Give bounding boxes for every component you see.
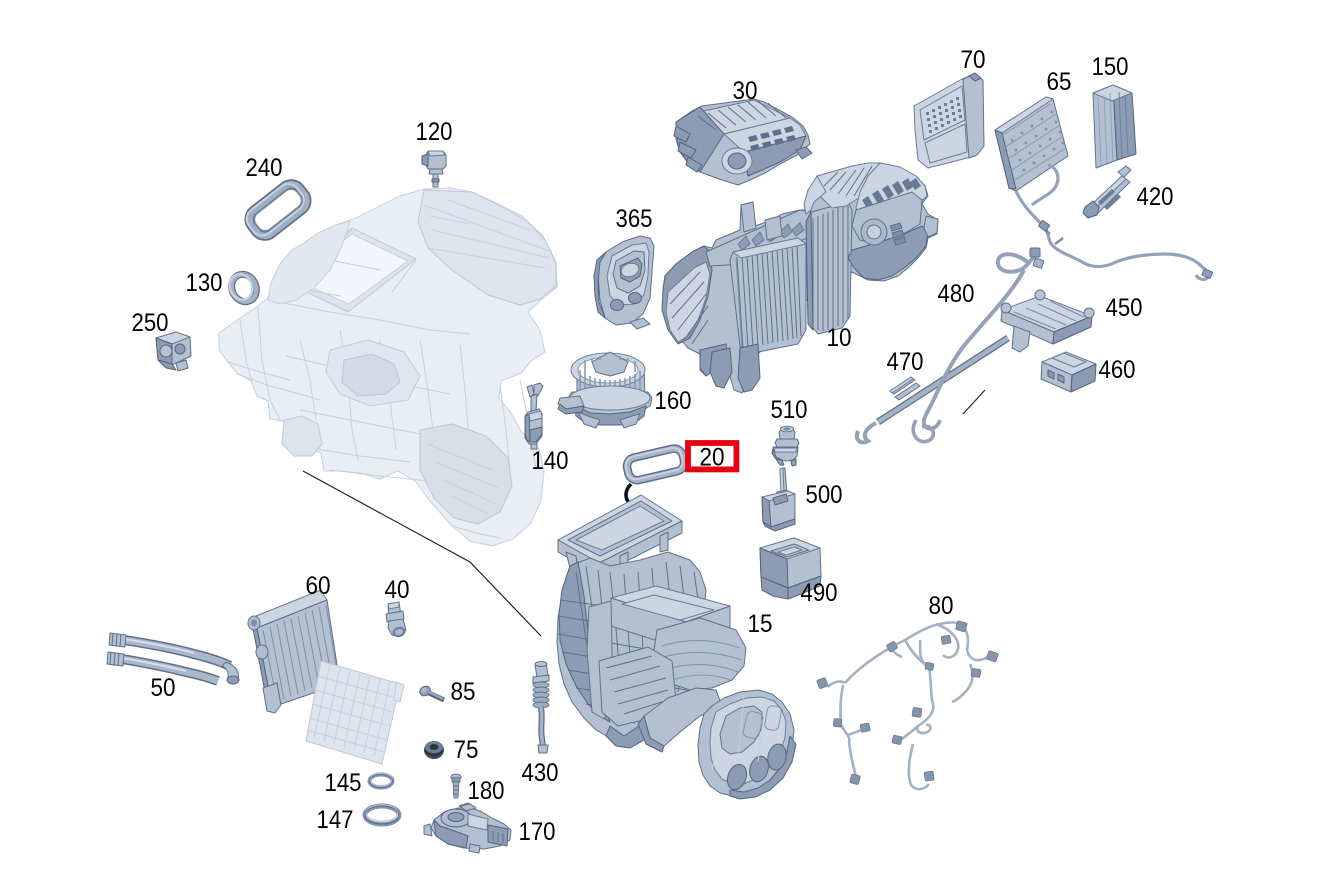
svg-text:140: 140 bbox=[532, 447, 569, 475]
svg-text:510: 510 bbox=[771, 396, 808, 424]
svg-text:470: 470 bbox=[887, 348, 924, 376]
svg-text:160: 160 bbox=[655, 387, 692, 415]
svg-text:150: 150 bbox=[1092, 53, 1129, 81]
svg-text:170: 170 bbox=[519, 818, 556, 846]
svg-text:180: 180 bbox=[468, 777, 505, 805]
svg-text:365: 365 bbox=[616, 205, 653, 233]
svg-text:480: 480 bbox=[938, 280, 975, 308]
svg-text:70: 70 bbox=[961, 46, 986, 74]
svg-text:460: 460 bbox=[1099, 356, 1136, 384]
svg-text:450: 450 bbox=[1106, 294, 1143, 322]
svg-text:20: 20 bbox=[700, 444, 725, 472]
svg-text:65: 65 bbox=[1047, 68, 1072, 96]
svg-text:120: 120 bbox=[416, 118, 453, 146]
svg-text:30: 30 bbox=[733, 77, 758, 105]
svg-text:10: 10 bbox=[827, 324, 852, 352]
svg-text:500: 500 bbox=[806, 481, 843, 509]
svg-text:75: 75 bbox=[454, 736, 479, 764]
svg-text:60: 60 bbox=[306, 572, 331, 600]
svg-text:145: 145 bbox=[325, 769, 362, 797]
svg-text:130: 130 bbox=[186, 269, 223, 297]
svg-text:15: 15 bbox=[748, 610, 773, 638]
svg-text:50: 50 bbox=[151, 674, 176, 702]
svg-text:430: 430 bbox=[522, 759, 559, 787]
svg-text:40: 40 bbox=[385, 576, 410, 604]
svg-text:147: 147 bbox=[317, 806, 354, 834]
svg-text:85: 85 bbox=[451, 678, 476, 706]
svg-text:250: 250 bbox=[132, 309, 169, 337]
svg-text:420: 420 bbox=[1137, 183, 1174, 211]
svg-text:240: 240 bbox=[246, 154, 283, 182]
svg-text:80: 80 bbox=[929, 592, 954, 620]
svg-text:490: 490 bbox=[801, 579, 838, 607]
